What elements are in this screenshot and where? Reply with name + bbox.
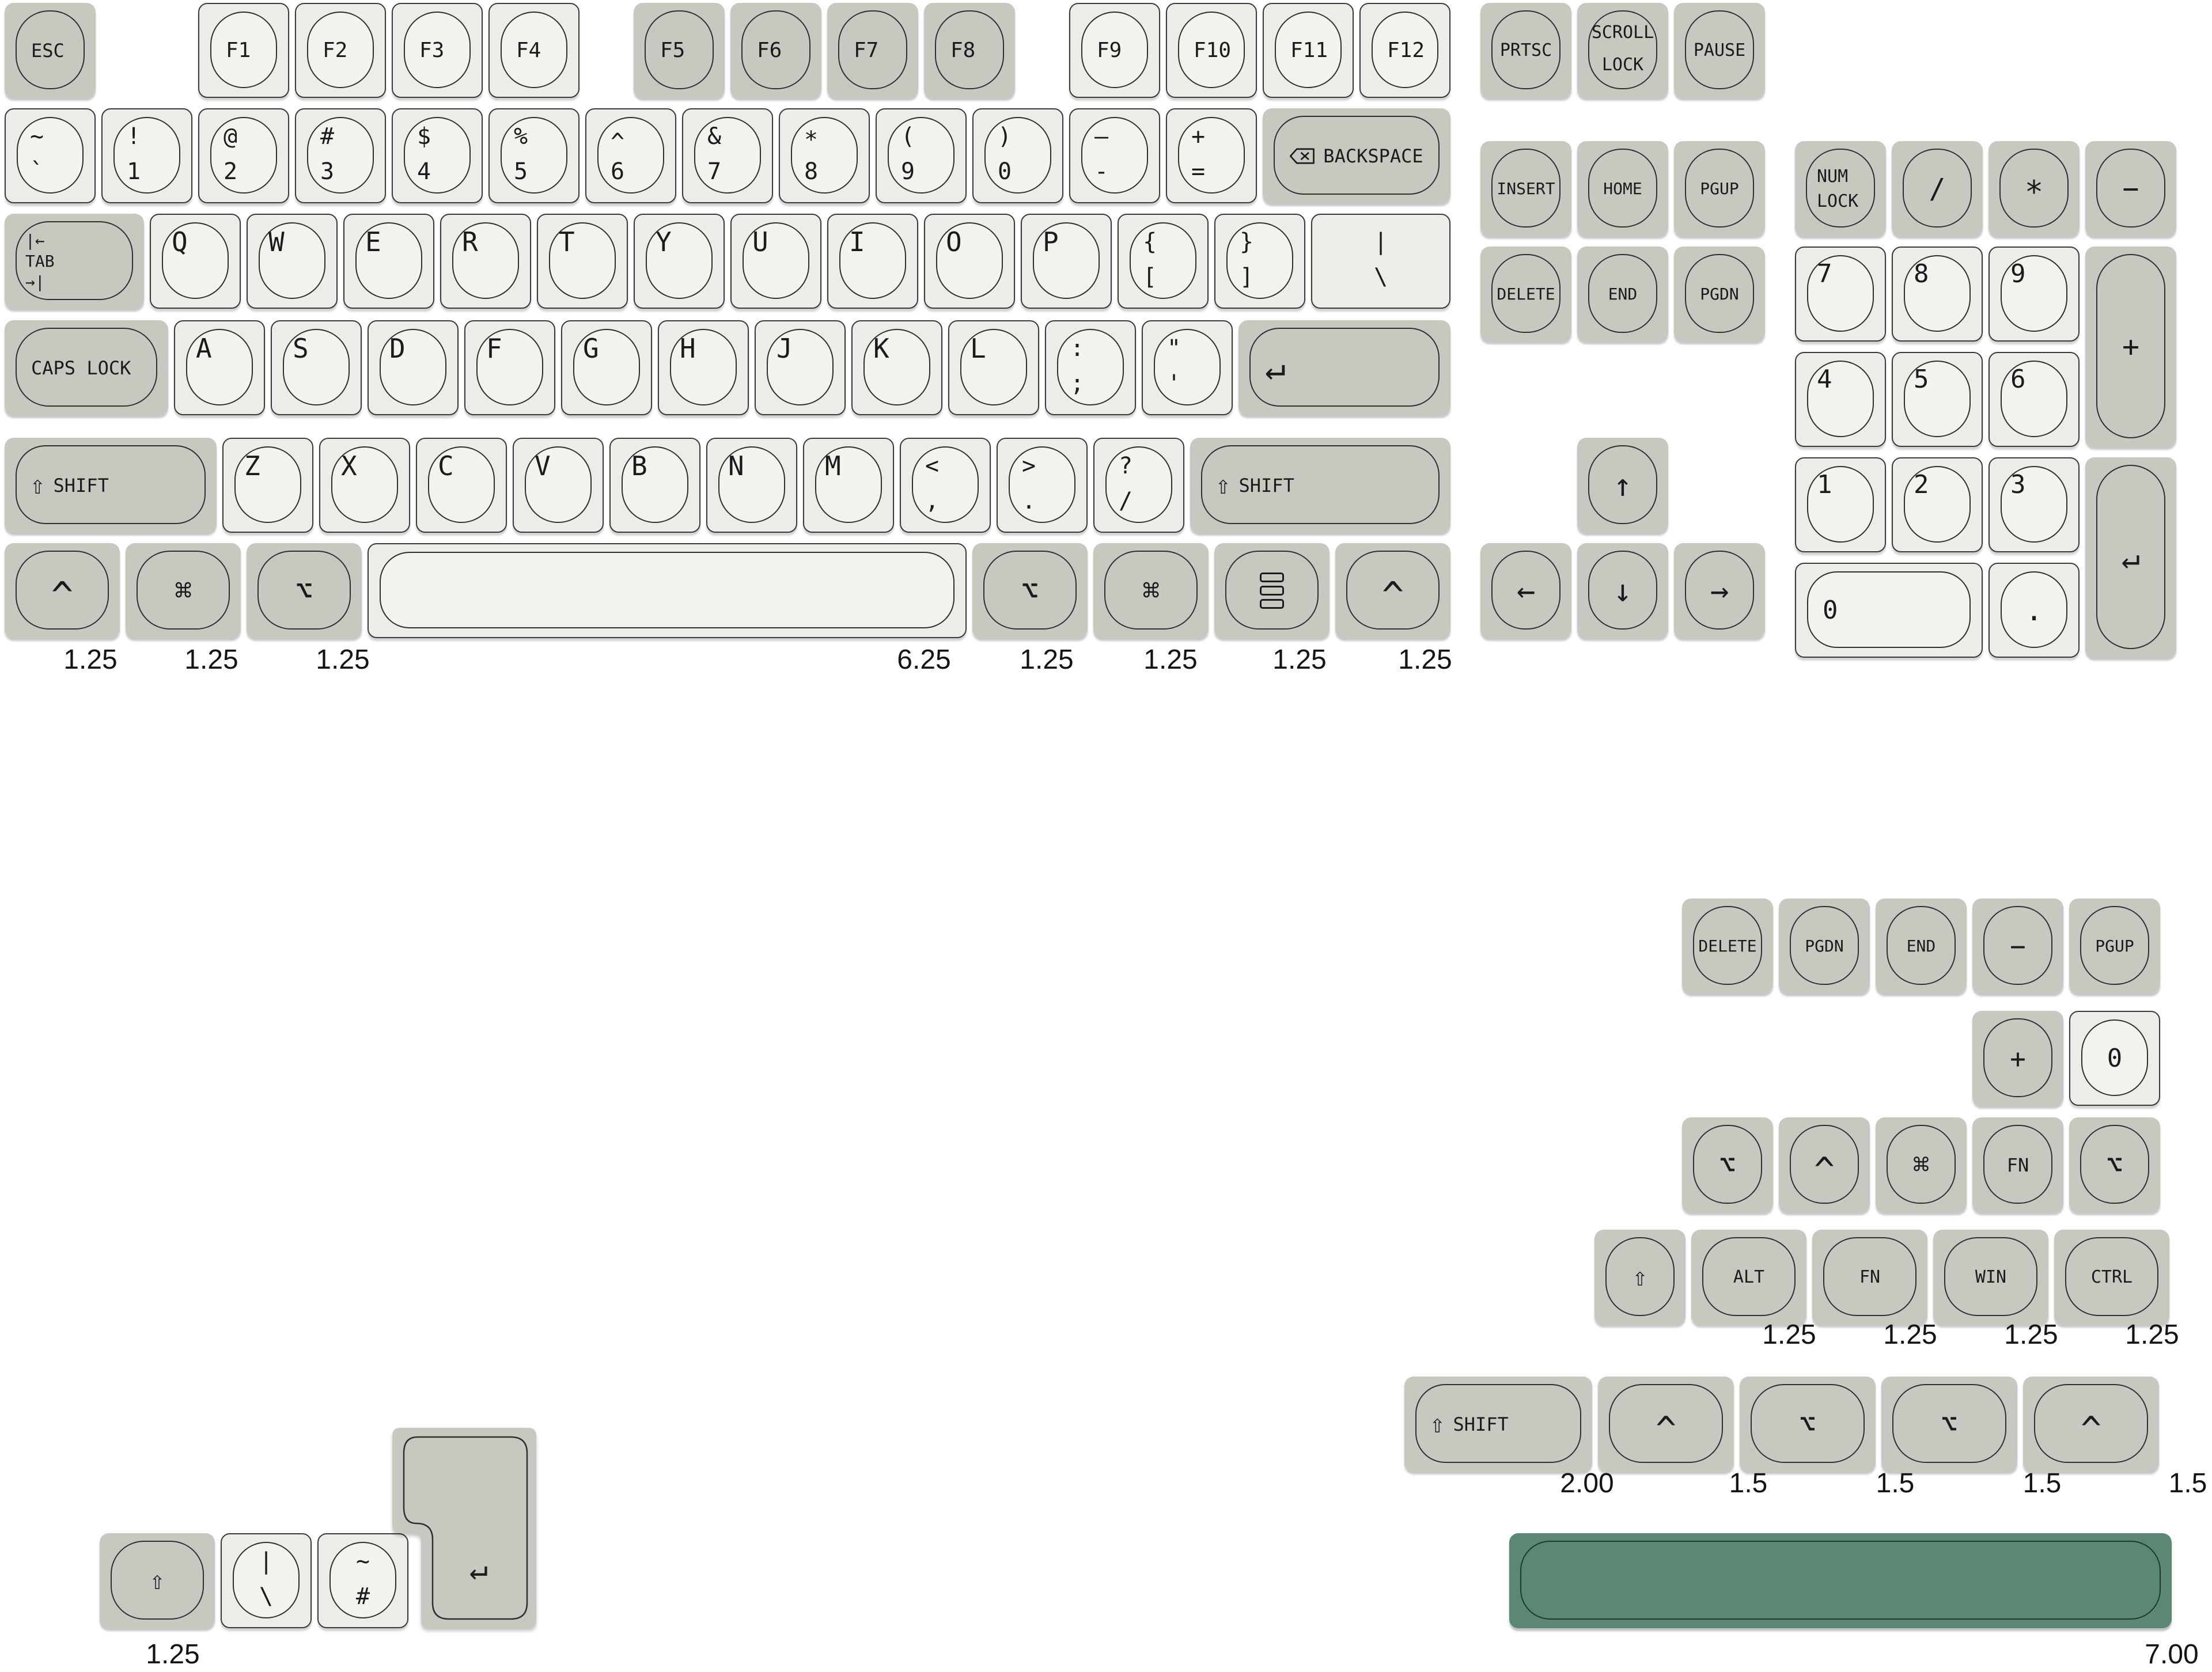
key-kit-end[interactable]: END <box>1876 898 1967 994</box>
key-p[interactable]: P <box>1021 214 1112 309</box>
key-legend-group: 3 <box>2010 470 2026 499</box>
key-legend-group: PRTSC <box>1480 3 1571 98</box>
key-legend: Y <box>656 226 672 257</box>
key-legend-group: FN <box>1812 1230 1927 1325</box>
key-legend: / <box>1119 488 1132 514</box>
key-legend: O <box>946 226 962 257</box>
key-legend-group <box>1214 543 1330 638</box>
key-legend-group: WIN <box>1933 1230 2048 1325</box>
key-legend-group: "' <box>1167 335 1181 397</box>
key-x[interactable]: X <box>319 438 410 533</box>
key-legend-group: :; <box>1070 335 1084 397</box>
key-kit-fn-2[interactable]: FN <box>1812 1230 1927 1325</box>
key-legend-group: F1 <box>226 4 251 97</box>
shift-icon: ⇧ <box>1215 471 1231 500</box>
key-num-8[interactable]: *8 <box>779 108 870 203</box>
key-legend: ⌥ <box>1941 1408 1958 1440</box>
key-legend: SCROLL <box>1592 22 1654 43</box>
key-legend: F1 <box>226 39 251 62</box>
key-legend: 0 <box>2107 1044 2123 1073</box>
keytop <box>113 117 180 194</box>
key-f3[interactable]: F3 <box>392 3 483 98</box>
key-legend: PGUP <box>2095 937 2134 956</box>
key-b[interactable]: B <box>609 438 700 533</box>
key-legend-group: ⇧SHIFT <box>1430 1377 1509 1472</box>
key-legend-group: F <box>486 333 502 364</box>
key-legend: ' <box>1167 370 1181 397</box>
key-legend: G <box>583 333 599 364</box>
key-legend: DELETE <box>1698 937 1756 956</box>
key-d[interactable]: D <box>368 320 459 415</box>
key-legend-group: F7 <box>854 3 878 98</box>
size-label: 1.25 <box>2125 1319 2179 1351</box>
key-semicolon[interactable]: :; <box>1045 320 1136 415</box>
key-lbracket[interactable]: {[ <box>1118 214 1209 309</box>
key-legend: 8 <box>1914 259 1929 289</box>
key-kp-subtract[interactable]: − <box>2085 141 2176 236</box>
key-f9[interactable]: F9 <box>1069 3 1160 98</box>
size-label: 1.25 <box>1398 644 1452 676</box>
key-kit-opt-2[interactable]: ⌥ <box>2069 1117 2160 1212</box>
key-num-9[interactable]: (9 <box>876 108 967 203</box>
key-legend-group: {[ <box>1143 229 1157 290</box>
key-left-ctrl[interactable]: ^ <box>5 543 120 638</box>
key-kit-pgup[interactable]: PGUP <box>2069 898 2160 994</box>
key-spacebar[interactable] <box>368 543 967 638</box>
key-legend: ) <box>998 123 1012 150</box>
key-prtsc[interactable]: PRTSC <box>1480 3 1571 98</box>
key-pgup[interactable]: PGUP <box>1674 141 1765 236</box>
key-legend-group: $4 <box>417 123 431 185</box>
key-legend-group: 9 <box>2010 259 2026 289</box>
key-legend-group: 6 <box>2010 365 2026 394</box>
key-scroll-lock[interactable]: SCROLLLOCK <box>1577 3 1668 98</box>
key-num-1[interactable]: !1 <box>101 108 192 203</box>
key-num-5[interactable]: %5 <box>488 108 579 203</box>
key-s[interactable]: S <box>271 320 362 415</box>
key-legend-group: S <box>293 333 309 364</box>
key-f6[interactable]: F6 <box>730 3 821 98</box>
key-right-opt[interactable]: ⌥ <box>972 543 1088 638</box>
key-kit-pgdn[interactable]: PGDN <box>1779 898 1870 994</box>
keytop <box>1130 222 1196 299</box>
key-kp-4[interactable]: 4 <box>1795 352 1886 447</box>
key-legend: { <box>1143 229 1157 255</box>
key-legend: U <box>752 226 768 257</box>
key-n[interactable]: N <box>706 438 797 533</box>
key-legend-group: I <box>849 226 865 257</box>
shift-icon: ⇧ <box>1430 1409 1445 1439</box>
key-rbracket[interactable]: }] <box>1214 214 1305 309</box>
key-legend: ^ <box>2081 1419 2101 1441</box>
key-green-spacebar[interactable] <box>1509 1533 2172 1628</box>
key-legend-group: ↵ <box>2085 457 2176 658</box>
key-home[interactable]: HOME <box>1577 141 1668 236</box>
key-legend: : <box>1070 335 1084 362</box>
key-o[interactable]: O <box>924 214 1015 309</box>
key-legend: 1 <box>1817 470 1832 499</box>
key-left-opt[interactable]: ⌥ <box>247 543 362 638</box>
key-c[interactable]: C <box>416 438 507 533</box>
key-legend-group: W <box>268 226 285 257</box>
key-legend: , <box>925 488 939 514</box>
key-legend: % <box>514 123 528 150</box>
key-legend-group: 8 <box>1914 259 1929 289</box>
key-f10[interactable]: F10 <box>1166 3 1257 98</box>
key-legend: + <box>2122 330 2139 363</box>
key-kit-ctrl-15-1[interactable]: ^ <box>1598 1377 1734 1472</box>
key-arrow-down[interactable]: ↓ <box>1577 543 1668 638</box>
size-label: 1.25 <box>1883 1319 1937 1351</box>
key-legend: } <box>1240 229 1253 255</box>
key-f[interactable]: F <box>464 320 555 415</box>
key-kp-0[interactable]: 0 <box>1795 563 1983 658</box>
key-legend: SHIFT <box>1453 1413 1509 1435</box>
key-legend-group: ⇧ <box>1594 1230 1685 1325</box>
key-legend-group: ?/ <box>1119 453 1132 514</box>
key-legend-group: H <box>680 333 696 364</box>
key-legend-group: F6 <box>757 3 782 98</box>
key-legend: F2 <box>323 39 347 62</box>
key-kit-ctrl-15-2[interactable]: ^ <box>2023 1377 2159 1472</box>
key-legend: + <box>1191 123 1205 150</box>
key-v[interactable]: V <box>513 438 604 533</box>
key-r[interactable]: R <box>440 214 531 309</box>
keytop <box>984 117 1051 194</box>
key-num-6[interactable]: ^6 <box>585 108 676 203</box>
key-kp-dot[interactable]: . <box>1988 563 2080 658</box>
key-kp-3[interactable]: 3 <box>1988 457 2080 552</box>
key-f4[interactable]: F4 <box>488 3 579 98</box>
keytop <box>501 117 567 194</box>
key-legend: / <box>1929 173 1946 205</box>
key-kp-add[interactable]: + <box>2085 247 2176 447</box>
key-kp-6[interactable]: 6 <box>1988 352 2080 447</box>
key-kp-enter[interactable]: ↵ <box>2085 457 2176 658</box>
key-e[interactable]: E <box>343 214 434 309</box>
key-quote[interactable]: "' <box>1142 320 1233 415</box>
key-f2[interactable]: F2 <box>295 3 386 98</box>
key-legend-group: Q <box>172 226 188 257</box>
key-right-cmd[interactable]: ⌘ <box>1093 543 1209 638</box>
key-legend: F6 <box>757 39 782 62</box>
key-kit-alt[interactable]: ALT <box>1691 1230 1806 1325</box>
key-kp-multiply[interactable]: * <box>1988 141 2080 236</box>
size-label: 1.5 <box>1876 1468 1915 1499</box>
key-legend: P <box>1043 226 1059 257</box>
keytop <box>1009 446 1075 523</box>
key-legend-group: A <box>196 333 212 364</box>
key-t[interactable]: T <box>537 214 628 309</box>
key-a[interactable]: A <box>174 320 265 415</box>
key-legend-group: PGUP <box>2069 898 2160 994</box>
key-legend-group: @2 <box>224 123 237 185</box>
key-right-shift[interactable]: ⇧SHIFT <box>1190 438 1450 533</box>
key-legend: * <box>804 131 818 149</box>
key-f8[interactable]: F8 <box>924 3 1015 98</box>
key-legend: C <box>438 450 454 481</box>
keytop <box>307 117 374 194</box>
key-kp-9[interactable]: 9 <box>1988 247 2080 342</box>
key-num-lock[interactable]: NUMLOCK <box>1795 141 1886 236</box>
key-q[interactable]: Q <box>150 214 241 309</box>
key-legend-group: V <box>535 450 551 481</box>
key-f7[interactable]: F7 <box>827 3 918 98</box>
key-kit-cmd[interactable]: ⌘ <box>1876 1117 1967 1212</box>
key-f5[interactable]: F5 <box>634 3 725 98</box>
key-kit-delete[interactable]: DELETE <box>1682 898 1773 994</box>
key-legend-group: PGUP <box>1674 141 1765 236</box>
key-k[interactable]: K <box>851 320 942 415</box>
key-insert[interactable]: INSERT <box>1480 141 1571 236</box>
key-legend-group: D <box>389 333 406 364</box>
key-legend: & <box>707 123 721 150</box>
key-legend: F12 <box>1387 39 1425 62</box>
key-legend: 2 <box>1914 470 1929 499</box>
key-legend-group: PAUSE <box>1674 3 1765 98</box>
key-end[interactable]: END <box>1577 247 1668 342</box>
keytop <box>17 117 84 194</box>
key-legend: ALT <box>1733 1267 1764 1287</box>
key-legend: M <box>825 450 841 481</box>
key-legend: + <box>2010 1043 2026 1074</box>
key-legend-group: –- <box>1094 123 1108 185</box>
key-legend: ↑ <box>1613 467 1633 503</box>
key-grave[interactable]: ~` <box>5 108 96 203</box>
key-legend-group: #3 <box>320 123 334 185</box>
key-legend-group: ⌘ <box>1093 543 1209 638</box>
key-arrow-up[interactable]: ↑ <box>1577 438 1668 533</box>
key-legend-group: ⌘ <box>126 543 241 638</box>
key-legend-group: ↑ <box>1577 438 1668 533</box>
key-num-0[interactable]: )0 <box>972 108 1063 203</box>
key-legend: F11 <box>1290 39 1328 62</box>
key-legend-group: PGDN <box>1674 247 1765 342</box>
key-legend-group: HOME <box>1577 141 1668 236</box>
key-kit-ctrl-word[interactable]: CTRL <box>2054 1230 2169 1325</box>
key-enter[interactable]: ↵ <box>1238 320 1450 415</box>
key-kit-plus[interactable]: + <box>1972 1011 2063 1106</box>
key-legend: – <box>1094 123 1108 150</box>
key-f1[interactable]: F1 <box>198 3 289 98</box>
key-kit-opt-1[interactable]: ⌥ <box>1682 1117 1773 1212</box>
key-backspace[interactable]: BACKSPACE <box>1263 108 1450 203</box>
key-legend: X <box>341 450 357 481</box>
key-j[interactable]: J <box>755 320 846 415</box>
key-legend-group: ⌥ <box>1881 1377 2017 1472</box>
key-legend: F9 <box>1097 39 1122 62</box>
key-h[interactable]: H <box>658 320 749 415</box>
key-m[interactable]: M <box>803 438 894 533</box>
key-legend-group: ⌥ <box>247 543 362 638</box>
key-legend: ↵ <box>2122 540 2141 576</box>
key-g[interactable]: G <box>561 320 652 415</box>
key-kit-minus[interactable]: − <box>1972 898 2063 994</box>
key-legend-group: − <box>2085 141 2176 236</box>
key-legend-group: ^ <box>1779 1117 1870 1212</box>
key-legend-group: DELETE <box>1480 247 1571 342</box>
key-kp-5[interactable]: 5 <box>1892 352 1983 447</box>
size-label: 1.25 <box>63 644 117 676</box>
key-legend: TAB <box>25 252 55 271</box>
key-comma[interactable]: <, <box>900 438 991 533</box>
key-num-4[interactable]: $4 <box>392 108 483 203</box>
key-legend-group: END <box>1876 898 1967 994</box>
key-kit-fn-1[interactable]: FN <box>1972 1117 2063 1212</box>
key-legend: @ <box>224 123 237 150</box>
key-legend: ⇧ <box>150 1566 165 1595</box>
key-minus[interactable]: –- <box>1069 108 1160 203</box>
key-legend: 6 <box>611 158 624 185</box>
key-legend-group: ← <box>1480 543 1571 638</box>
key-kit-win[interactable]: WIN <box>1933 1230 2048 1325</box>
key-legend-group: ⌥ <box>972 543 1088 638</box>
key-legend: | <box>259 1548 273 1575</box>
key-legend-group: ⇧SHIFT <box>1215 438 1294 533</box>
enter-icon: ↵ <box>469 1551 488 1587</box>
key-arrow-right[interactable]: → <box>1674 543 1765 638</box>
key-legend: END <box>1608 285 1638 304</box>
key-delete[interactable]: DELETE <box>1480 247 1571 342</box>
key-backslash[interactable]: |\ <box>1311 214 1450 309</box>
key-kp-2[interactable]: 2 <box>1892 457 1983 552</box>
key-legend: < <box>925 453 939 479</box>
key-legend: 3 <box>2010 470 2026 499</box>
key-num-3[interactable]: #3 <box>295 108 386 203</box>
key-arrow-left[interactable]: ← <box>1480 543 1571 638</box>
key-u[interactable]: U <box>730 214 821 309</box>
key-legend-group: + <box>1972 1011 2063 1106</box>
key-kit-ctrl-1[interactable]: ^ <box>1779 1117 1870 1212</box>
key-iso-shift[interactable]: ⇧ <box>100 1533 215 1628</box>
key-i[interactable]: I <box>827 214 918 309</box>
key-legend-group: 7 <box>1817 259 1832 289</box>
key-legend-group: *8 <box>804 123 818 185</box>
key-legend: F7 <box>854 39 878 62</box>
key-legend: BACKSPACE <box>1323 145 1423 167</box>
key-legend-group: (9 <box>901 123 915 185</box>
key-period[interactable]: >. <box>997 438 1088 533</box>
key-legend-group: ~` <box>30 123 44 185</box>
key-legend: 3 <box>320 158 334 185</box>
key-legend-group: ^ <box>1598 1377 1734 1472</box>
key-legend: 4 <box>1817 365 1832 394</box>
key-legend: 6 <box>2010 365 2026 394</box>
key-legend: - <box>1094 158 1108 185</box>
key-pause[interactable]: PAUSE <box>1674 3 1765 98</box>
key-iso-enter[interactable]: ↵ <box>392 1428 536 1628</box>
key-legend: 5 <box>1914 365 1929 394</box>
key-legend: 8 <box>804 158 818 185</box>
key-menu[interactable] <box>1214 543 1330 638</box>
key-slash[interactable]: ?/ <box>1093 438 1184 533</box>
key-legend-group: NUMLOCK <box>1817 141 1858 236</box>
key-kp-7[interactable]: 7 <box>1795 247 1886 342</box>
key-num-2[interactable]: @2 <box>198 108 289 203</box>
key-legend-group: M <box>825 450 841 481</box>
key-y[interactable]: Y <box>634 214 725 309</box>
key-legend: F10 <box>1194 39 1231 62</box>
key-legend-group: F11 <box>1290 4 1328 97</box>
key-legend: ↓ <box>1613 573 1633 609</box>
key-legend-group: L <box>970 333 986 364</box>
key-legend-group: 4 <box>1817 365 1832 394</box>
key-legend: ^ <box>611 135 624 150</box>
key-kit-opt-15-1[interactable]: ⌥ <box>1740 1377 1876 1472</box>
key-legend: 9 <box>2010 259 2026 289</box>
key-legend: PAUSE <box>1694 40 1745 60</box>
key-kit-0[interactable]: 0 <box>2069 1011 2160 1106</box>
key-legend-group: F9 <box>1097 4 1122 97</box>
key-legend-group: )0 <box>998 123 1012 185</box>
key-iso-pipe[interactable]: |\ <box>221 1533 312 1628</box>
key-legend: # <box>320 123 334 150</box>
key-legend: H <box>680 333 696 364</box>
key-w[interactable]: W <box>247 214 338 309</box>
key-tab[interactable]: |←TAB→| <box>5 214 144 309</box>
size-label: 1.5 <box>1729 1468 1768 1499</box>
key-legend-group: &7 <box>707 123 721 185</box>
key-legend: 7 <box>707 158 721 185</box>
key-legend-group: <, <box>925 453 939 514</box>
key-legend-group: F2 <box>323 4 347 97</box>
key-legend-group: ^ <box>1335 543 1450 638</box>
key-legend-group: U <box>752 226 768 257</box>
key-num-7[interactable]: &7 <box>682 108 773 203</box>
key-l[interactable]: L <box>948 320 1039 415</box>
key-z[interactable]: Z <box>222 438 313 533</box>
key-left-shift[interactable]: ⇧SHIFT <box>5 438 217 533</box>
key-legend-group: END <box>1577 247 1668 342</box>
key-kit-opt-15-2[interactable]: ⌥ <box>1881 1377 2017 1472</box>
key-kit-shift-2u[interactable]: ⇧SHIFT <box>1404 1377 1592 1472</box>
key-equals[interactable]: += <box>1166 108 1257 203</box>
key-legend: A <box>196 333 212 364</box>
key-legend: = <box>1191 158 1205 185</box>
key-legend: SHIFT <box>1239 475 1294 496</box>
key-f12[interactable]: F12 <box>1359 3 1450 98</box>
key-legend-group: N <box>728 450 744 481</box>
key-kit-shift-1u[interactable]: ⇧ <box>1594 1230 1685 1325</box>
keytop <box>404 117 471 194</box>
key-legend-group: Z <box>244 450 260 481</box>
key-legend-group <box>1509 1533 2172 1628</box>
key-esc[interactable]: ESC <box>5 3 96 98</box>
key-legend: SHIFT <box>54 475 109 496</box>
key-legend-group: }] <box>1240 229 1253 290</box>
key-legend-group: + <box>2085 247 2176 447</box>
keytop <box>1105 446 1172 523</box>
key-kp-8[interactable]: 8 <box>1892 247 1983 342</box>
key-f11[interactable]: F11 <box>1263 3 1354 98</box>
key-legend-group: X <box>341 450 357 481</box>
key-pgdn[interactable]: PGDN <box>1674 247 1765 342</box>
key-legend-group: FN <box>1972 1117 2063 1212</box>
key-legend: F5 <box>660 39 685 62</box>
keytop <box>1154 329 1221 405</box>
key-kp-1[interactable]: 1 <box>1795 457 1886 552</box>
iso-enter-shape <box>392 1428 536 1628</box>
key-legend: 1 <box>127 158 141 185</box>
keytop <box>1226 222 1293 299</box>
key-left-cmd[interactable]: ⌘ <box>126 543 241 638</box>
size-label: 1.25 <box>184 644 238 676</box>
key-legend: END <box>1907 937 1936 956</box>
key-right-ctrl[interactable]: ^ <box>1335 543 1450 638</box>
key-caps-lock[interactable]: CAPS LOCK <box>5 320 168 415</box>
key-legend: DELETE <box>1497 285 1555 304</box>
key-kp-divide[interactable]: / <box>1892 141 1983 236</box>
